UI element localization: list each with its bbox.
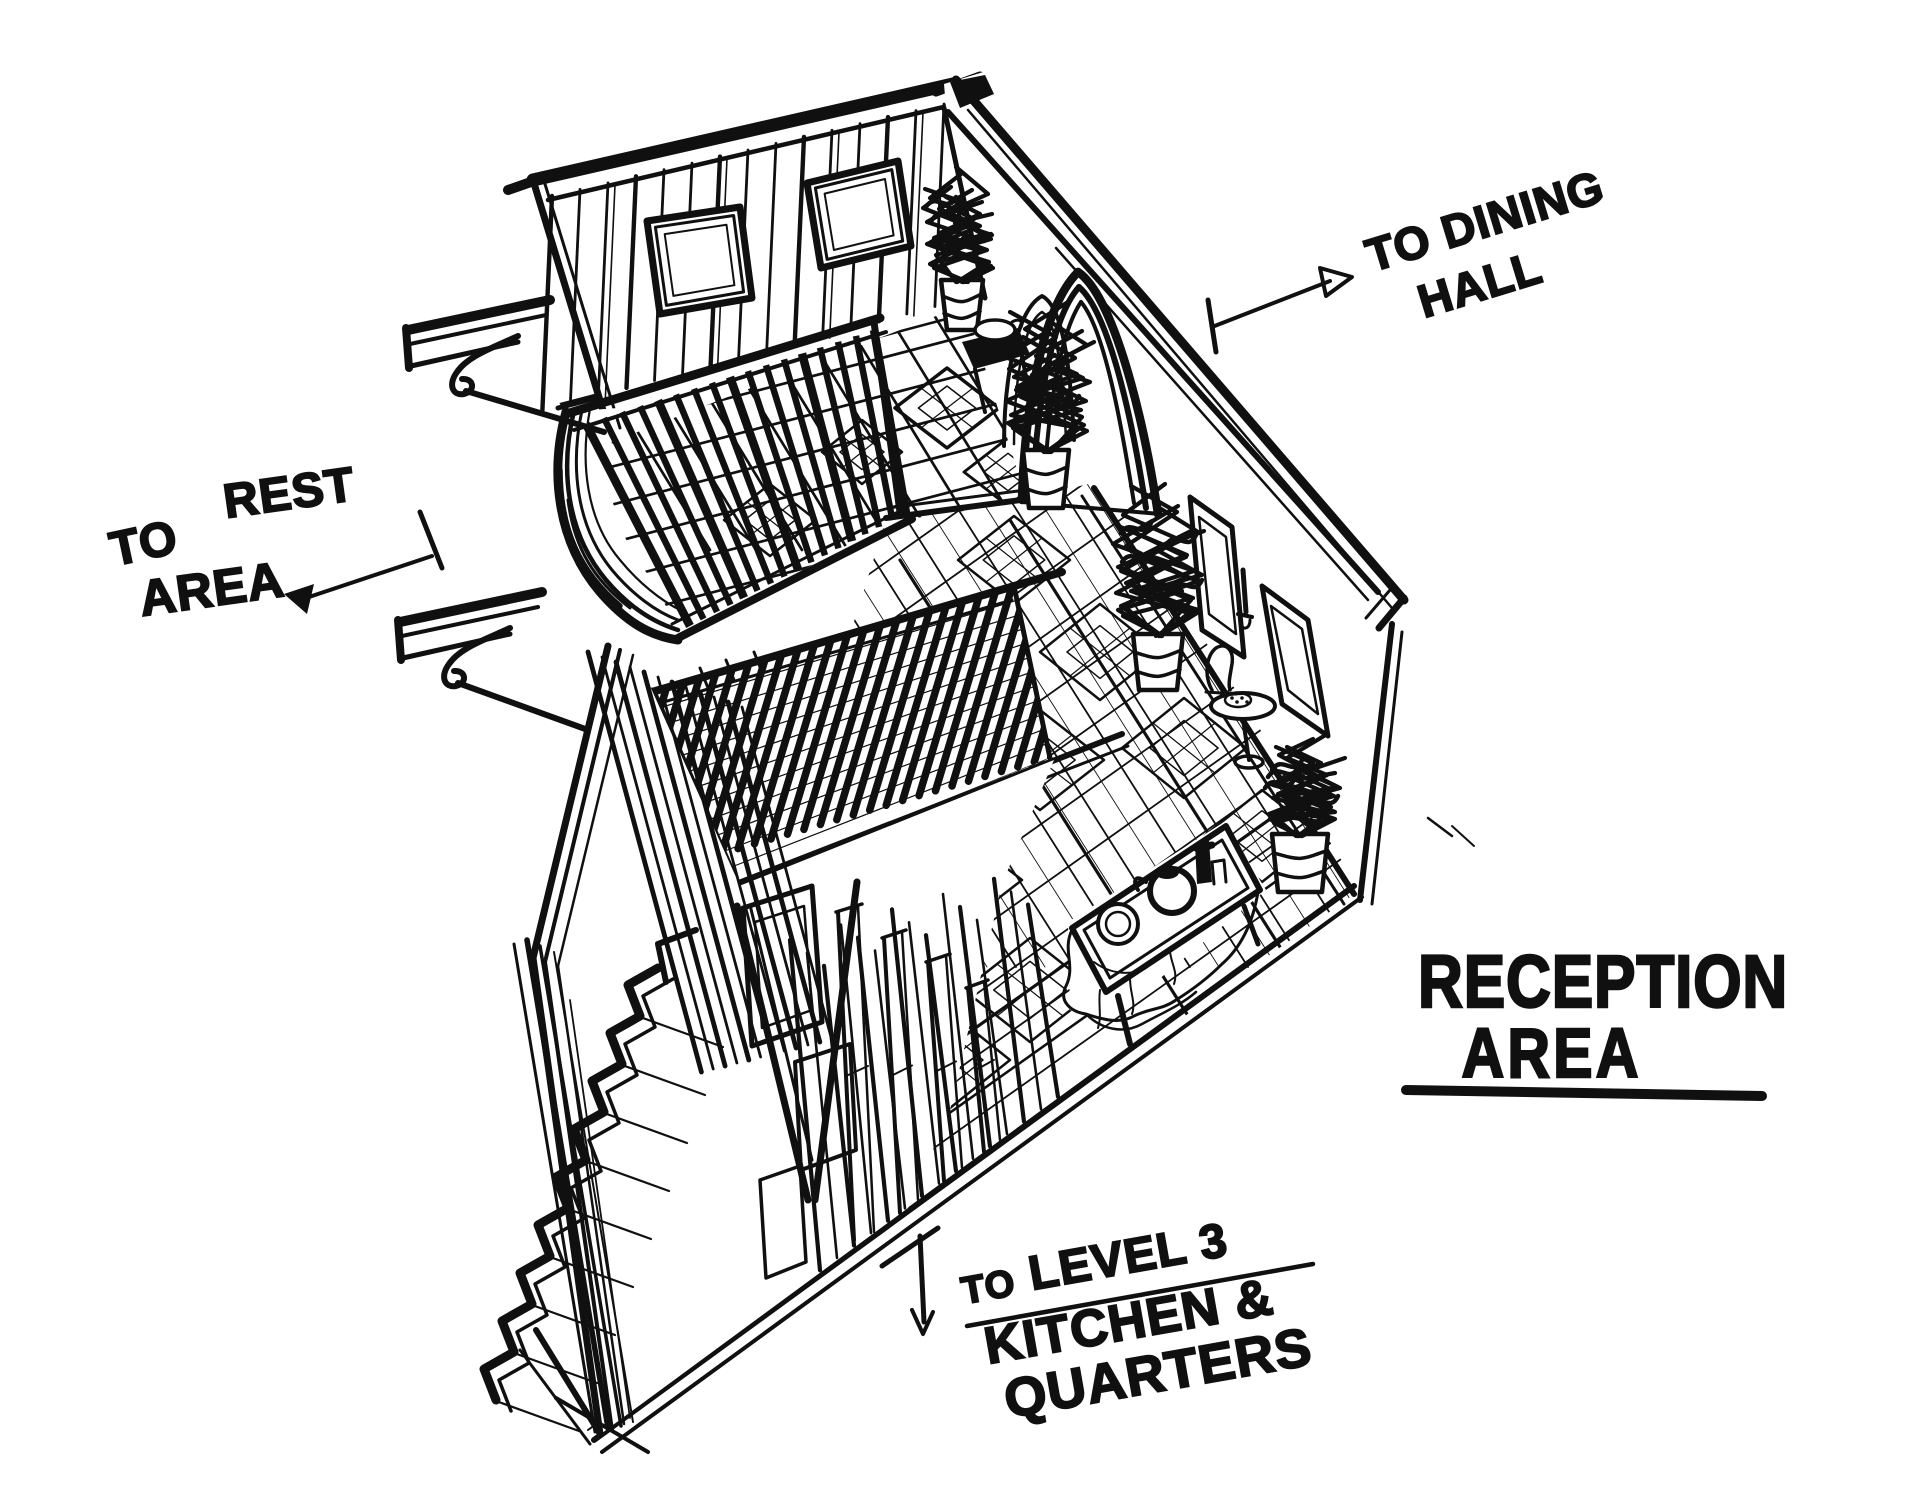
svg-text:AREA: AREA xyxy=(1462,1013,1642,1092)
svg-text:RECEPTION: RECEPTION xyxy=(1418,941,1788,1023)
